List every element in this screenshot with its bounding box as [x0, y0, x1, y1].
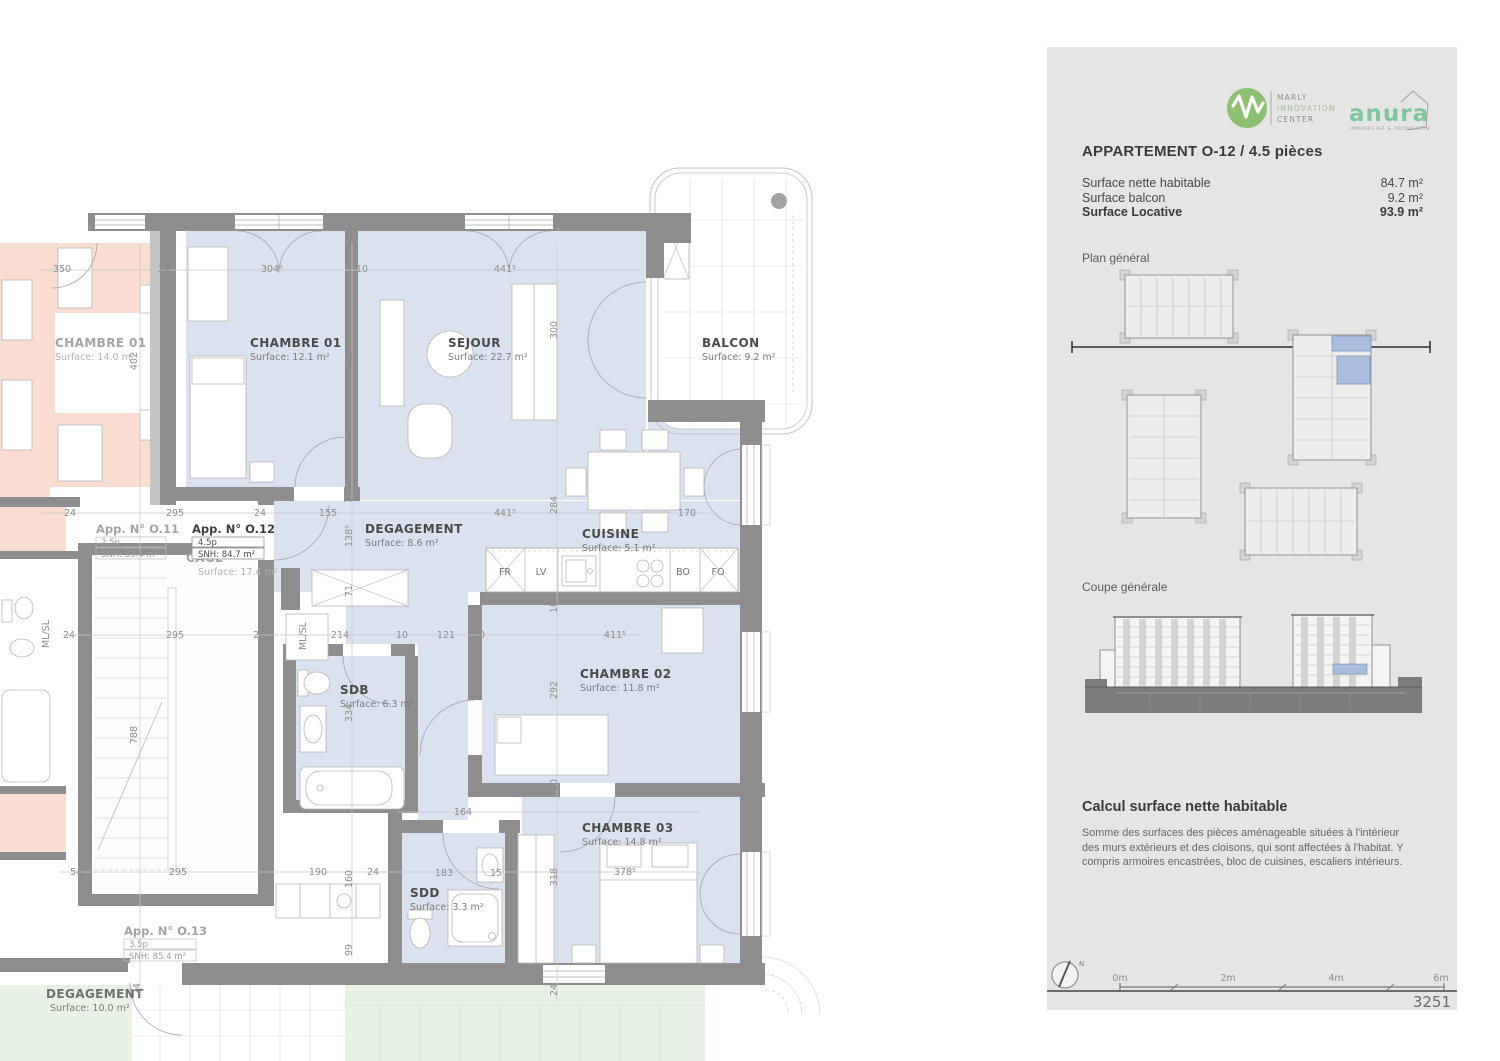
room-name: DEGAGEMENT: [365, 522, 463, 536]
calcul-description: Somme des surfaces des pièces aménageabl…: [1082, 826, 1418, 870]
surface-row-total: Surface Locative 93.9 m²: [1082, 205, 1423, 219]
marly-logo-line1: MARLY: [1277, 93, 1308, 102]
apartment-type: 3.5p: [129, 940, 148, 950]
mini-plan-building-c: [1122, 390, 1206, 523]
dim-label: 10: [396, 630, 408, 641]
apartment-title: App. N° O.12: [192, 522, 275, 536]
dim-label: 304⁵: [261, 264, 283, 275]
dim-label: 10: [356, 264, 368, 275]
plan-general-label: Plan général: [1082, 251, 1149, 265]
surface-row-label: Surface nette habitable: [1082, 176, 1211, 190]
apartment-title: App. N° O.11: [96, 522, 179, 536]
surface-row-value: 9.2 m²: [1388, 191, 1423, 205]
dim-label: 190: [309, 867, 327, 878]
dim-label: 214: [331, 630, 349, 641]
room-name: CHAMBRE 01: [55, 336, 147, 350]
dim-label: 24: [549, 984, 560, 996]
apartment-title: APPARTEMENT O-12 / 4.5 pièces: [1082, 143, 1323, 160]
room-surface: Surface: 14.8 m²: [582, 837, 662, 848]
room-surface: Surface: 11.8 m²: [580, 683, 660, 694]
room-name: SDB: [340, 683, 369, 697]
room-name: CUISINE: [582, 527, 639, 541]
calcul-title: Calcul surface nette habitable: [1082, 799, 1287, 815]
apartment-tag-o13: App. N° O.13 3.5p SNH: 85.4 m²: [124, 924, 207, 962]
dim-label: 24: [367, 867, 379, 878]
dim-label: 24: [158, 264, 170, 275]
room-surface: Surface: 12.1 m²: [250, 352, 330, 363]
section-drawing: [1085, 615, 1422, 713]
section-apartment-highlight: [1333, 664, 1367, 674]
marly-innovation-center-logo: MARLY INNOVATION CENTER: [1227, 88, 1336, 128]
apartment-tag-o12: App. N° O.12 4.5p SNH: 84.7 m²: [192, 522, 275, 560]
apartment-highlight: [1337, 356, 1370, 384]
room-surface: Surface: 17.4 m²: [198, 567, 278, 578]
site-plan-thumbnails: [1072, 270, 1430, 560]
dim-label: 71: [344, 585, 355, 597]
dim-label: 292: [549, 681, 560, 699]
dim-label: 378⁵: [614, 867, 636, 878]
room-name: CHAMBRE 01: [250, 336, 342, 350]
room-surface: Surface: 3.3 m²: [410, 902, 484, 913]
kitchen-label-fo: FO: [712, 567, 725, 578]
cage-stairwell: [90, 555, 258, 890]
dim-label: 402: [129, 352, 140, 370]
dim-label: 10: [549, 601, 560, 613]
room-name: SEJOUR: [448, 336, 501, 350]
dim-label: 334: [344, 704, 355, 722]
apartment-type: 2.5p: [101, 538, 120, 548]
surface-row: Surface balcon 9.2 m²: [1082, 191, 1423, 205]
surface-row-value: 84.7 m²: [1381, 176, 1423, 190]
dim-label: 183: [435, 868, 453, 879]
closet-label: ML/SL: [298, 621, 309, 650]
dim-label: 788: [129, 726, 140, 744]
room-surface: Surface: 10.0 m²: [50, 1003, 130, 1014]
room-surface: Surface: 8.6 m²: [365, 538, 439, 549]
dim-label: 295: [169, 867, 187, 878]
surface-row-label: Surface balcon: [1082, 191, 1165, 205]
dim-label: 295: [166, 630, 184, 641]
kitchen-counter: [486, 548, 738, 592]
coupe-generale-label: Coupe générale: [1082, 580, 1167, 594]
mini-plan-building-a: [1120, 270, 1238, 343]
dim-label: 170: [678, 508, 696, 519]
scale-label: 2m: [1220, 973, 1235, 984]
scale-label: 6m: [1433, 973, 1448, 984]
surface-row-label: Surface Locative: [1082, 205, 1182, 219]
room-surface: Surface: 14.0 m²: [55, 352, 135, 363]
compass: N: [1052, 960, 1084, 988]
dim-label: 350: [53, 264, 71, 275]
dim-label: 99: [344, 944, 355, 956]
section-ground: [1085, 687, 1422, 713]
scale-bar: 0m 2m 4m 6m: [1112, 973, 1448, 991]
room-surface: Surface: 9.2 m²: [702, 352, 776, 363]
room-surface: Surface: 5.1 m²: [582, 543, 656, 554]
apartment-snh: SNH: 53.4 m²: [101, 550, 158, 560]
plan-sheet: CHAMBRE 01 Surface: 14.0 m² CHAMBRE 01 S…: [0, 0, 1500, 1061]
mini-plan-building-d: [1240, 483, 1362, 560]
dim-label: 24: [254, 508, 266, 519]
dim-label: 155: [319, 508, 337, 519]
dim-label: 24: [63, 630, 75, 641]
apartment-type: 4.5p: [198, 538, 217, 548]
room-name: CHAMBRE 02: [580, 667, 672, 681]
kitchen-label-fr: FR: [499, 567, 511, 578]
dim-label: 160: [344, 870, 355, 888]
anura-logo-subtext: IMMOBILIER & PROMOTION: [1350, 126, 1430, 132]
dim-label: 10: [549, 779, 560, 791]
scale-label: 0m: [1112, 973, 1127, 984]
apartment-snh: SNH: 84.7 m²: [198, 550, 255, 560]
panel-footer-rule: [1047, 990, 1457, 992]
room-name: CHAMBRE 03: [582, 821, 674, 835]
dim-label: 24: [132, 983, 143, 995]
bedroom3-furniture: [518, 835, 724, 963]
apartment-title: App. N° O.13: [124, 924, 207, 938]
dim-label: 401: [344, 352, 355, 370]
anura-logo-text: anura: [1349, 101, 1429, 127]
dim-label: 121: [437, 630, 455, 641]
balcony-drain: [771, 193, 787, 209]
kitchen-label-bo: BO: [676, 567, 690, 578]
dim-label: 284: [549, 496, 560, 514]
apartment-o13-furniture: [276, 884, 380, 918]
scale-label: 4m: [1328, 973, 1343, 984]
dim-label: 318: [549, 868, 560, 886]
dim-label: 441⁵: [494, 508, 516, 519]
marly-logo-line3: CENTER: [1277, 115, 1314, 124]
dim-label: 10: [473, 630, 485, 641]
kitchen-label-lv: LV: [536, 567, 547, 578]
dim-label: 138⁵: [344, 525, 355, 547]
room-name: BALCON: [702, 336, 760, 350]
surface-row: Surface nette habitable 84.7 m²: [1082, 176, 1423, 190]
closet-label: ML/SL: [41, 619, 52, 648]
surface-row-value: 93.9 m²: [1380, 205, 1423, 219]
dim-label: 411⁵: [604, 630, 626, 641]
apartment-highlight: [1332, 336, 1371, 351]
dim-label: 24: [64, 508, 76, 519]
apartment-snh: SNH: 85.4 m²: [129, 952, 186, 962]
dim-label: 10: [343, 491, 354, 503]
room-surface: Surface: 22.7 m²: [448, 352, 528, 363]
anura-logo: anura IMMOBILIER & PROMOTION: [1349, 91, 1430, 132]
room-name: SDD: [410, 886, 440, 900]
dim-label: 164: [454, 807, 472, 818]
mini-plan-building-b-highlighted: [1288, 330, 1376, 465]
room-name: DEGAGEMENT: [46, 987, 144, 1001]
dim-label: 441⁵: [494, 264, 516, 275]
dim-label: 54: [70, 867, 82, 878]
marly-logo-line2: INNOVATION: [1277, 104, 1336, 113]
dim-label: 24: [253, 630, 265, 641]
sheet-number: 3251: [1413, 993, 1451, 1011]
dim-label: 300: [549, 321, 560, 339]
dim-label: 295: [166, 508, 184, 519]
dim-label: 15: [490, 868, 502, 879]
compass-north-label: N: [1079, 960, 1084, 968]
